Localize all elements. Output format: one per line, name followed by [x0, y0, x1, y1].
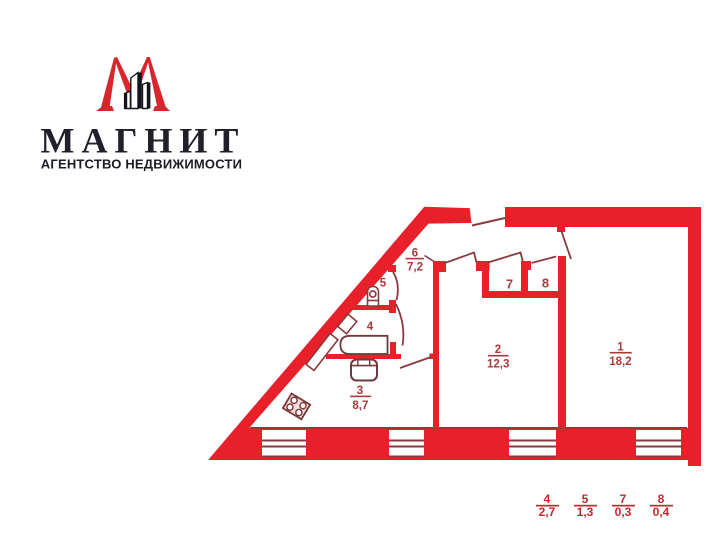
svg-text:МАГНИТ: МАГНИТ [41, 121, 246, 161]
svg-text:8,7: 8,7 [352, 400, 368, 412]
svg-text:1: 1 [617, 342, 624, 354]
svg-text:3: 3 [357, 385, 363, 397]
svg-text:1,3: 1,3 [577, 505, 594, 519]
svg-text:4: 4 [544, 492, 551, 506]
svg-text:2,7: 2,7 [539, 505, 556, 519]
svg-text:0,4: 0,4 [653, 505, 670, 519]
svg-text:7,2: 7,2 [407, 262, 423, 274]
svg-text:0,3: 0,3 [615, 505, 632, 519]
svg-text:6: 6 [412, 248, 418, 260]
svg-text:7: 7 [506, 277, 513, 292]
svg-text:4: 4 [367, 321, 374, 333]
svg-text:12,3: 12,3 [487, 359, 509, 371]
svg-text:АГЕНТСТВО НЕДВИЖИМОСТИ: АГЕНТСТВО НЕДВИЖИМОСТИ [41, 157, 242, 172]
svg-text:5: 5 [380, 278, 387, 290]
svg-text:5: 5 [582, 492, 589, 506]
svg-text:8: 8 [658, 492, 665, 506]
svg-text:2: 2 [495, 344, 501, 356]
svg-text:18,2: 18,2 [609, 356, 631, 368]
svg-text:8: 8 [542, 276, 549, 291]
svg-text:7: 7 [620, 492, 627, 506]
